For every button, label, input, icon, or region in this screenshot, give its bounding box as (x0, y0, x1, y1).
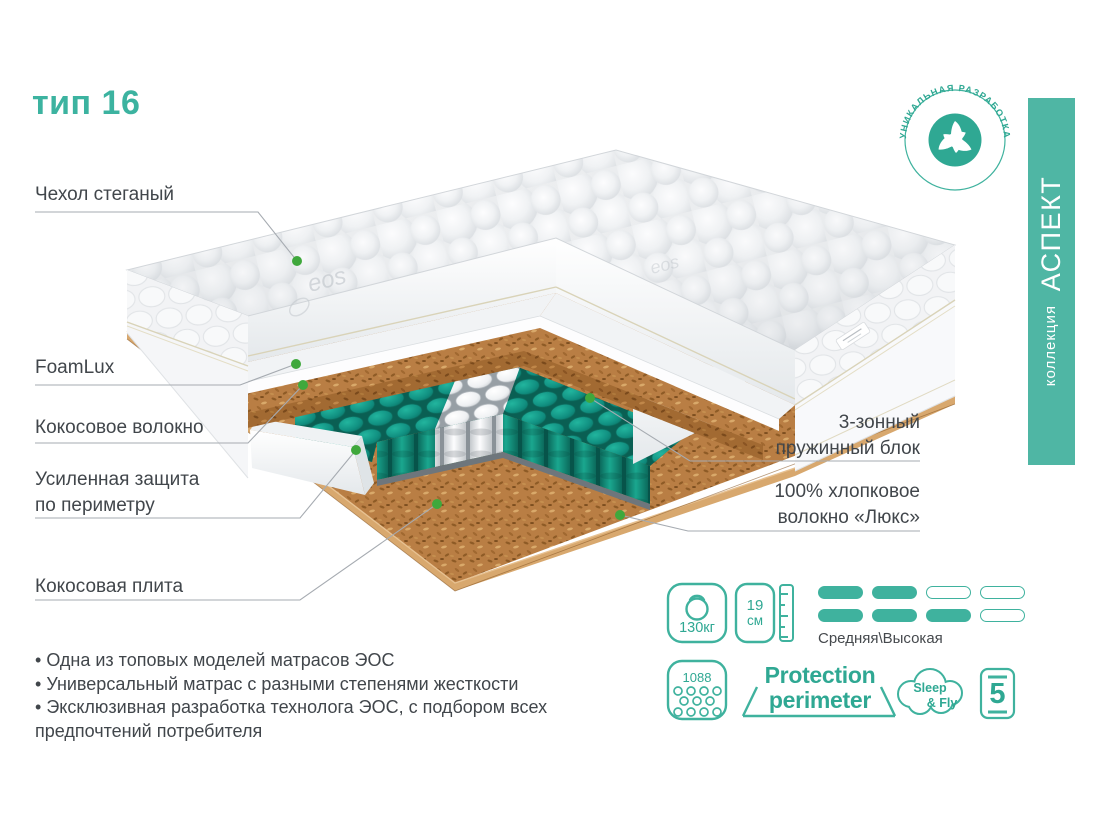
firmness-label: Средняя\Высокая (818, 630, 943, 647)
firmness-pill (872, 609, 917, 622)
ruler-icon (780, 585, 793, 641)
callout-cover: Чехол стеганый (35, 184, 174, 206)
feature-item: Одна из топовых моделей матрасов ЭОС (35, 649, 620, 673)
height-value: 19 (736, 597, 774, 614)
collection-name: АСПЕКТ (1036, 176, 1066, 292)
firmness-pill (926, 586, 971, 599)
callout-perimeter-line1: Усиленная защита (35, 469, 199, 491)
callout-perimeter-line2: по периметру (35, 495, 155, 517)
collection-sidebar: коллекция АСПЕКТ (1028, 98, 1075, 465)
firmness-pill (980, 586, 1025, 599)
firmness-pill (872, 586, 917, 599)
brand-logo-line1: Sleep (897, 681, 963, 695)
firmness-pill (980, 609, 1025, 622)
callout-cotton-line1: 100% хлопковое (640, 481, 920, 503)
collection-prefix: коллекция (1042, 305, 1059, 386)
callout-coconut-plate: Кокосовая плита (35, 576, 183, 598)
max-load-value: 130кг (666, 620, 728, 636)
height-unit: см (736, 613, 774, 628)
firmness-pill (818, 586, 863, 599)
unique-development-badge: УНИКАЛЬНАЯ РАЗРАБОТКА (898, 83, 1012, 190)
infographic-page: eos eos (0, 0, 1100, 814)
warranty-years: 5 (980, 678, 1015, 711)
kettlebell-icon (687, 599, 708, 620)
callout-coconut-fiber: Кокосовое волокно (35, 417, 204, 439)
callout-cotton-line2: волокно «Люкс» (640, 507, 920, 529)
protection-logo-line1: Protection (744, 662, 896, 689)
callout-springs-line1: 3-зонный (640, 412, 920, 434)
feature-list: Одна из топовых моделей матрасов ЭОС Уни… (35, 649, 620, 743)
feature-item: Универсальный матрас с разными степенями… (35, 673, 620, 697)
springs-count: 1088 (666, 670, 728, 685)
callout-foamlux: FoamLux (35, 357, 114, 379)
firmness-pill (818, 609, 863, 622)
brand-logo-line2: & Fly (909, 696, 975, 710)
feature-item: Эксклюзивная разработка технолога ЭОС, с… (35, 696, 620, 743)
page-title: тип 16 (32, 84, 140, 123)
protection-logo-line2: perimeter (744, 687, 896, 714)
firmness-pill (926, 609, 971, 622)
callout-springs-line2: пружинный блок (640, 438, 920, 460)
